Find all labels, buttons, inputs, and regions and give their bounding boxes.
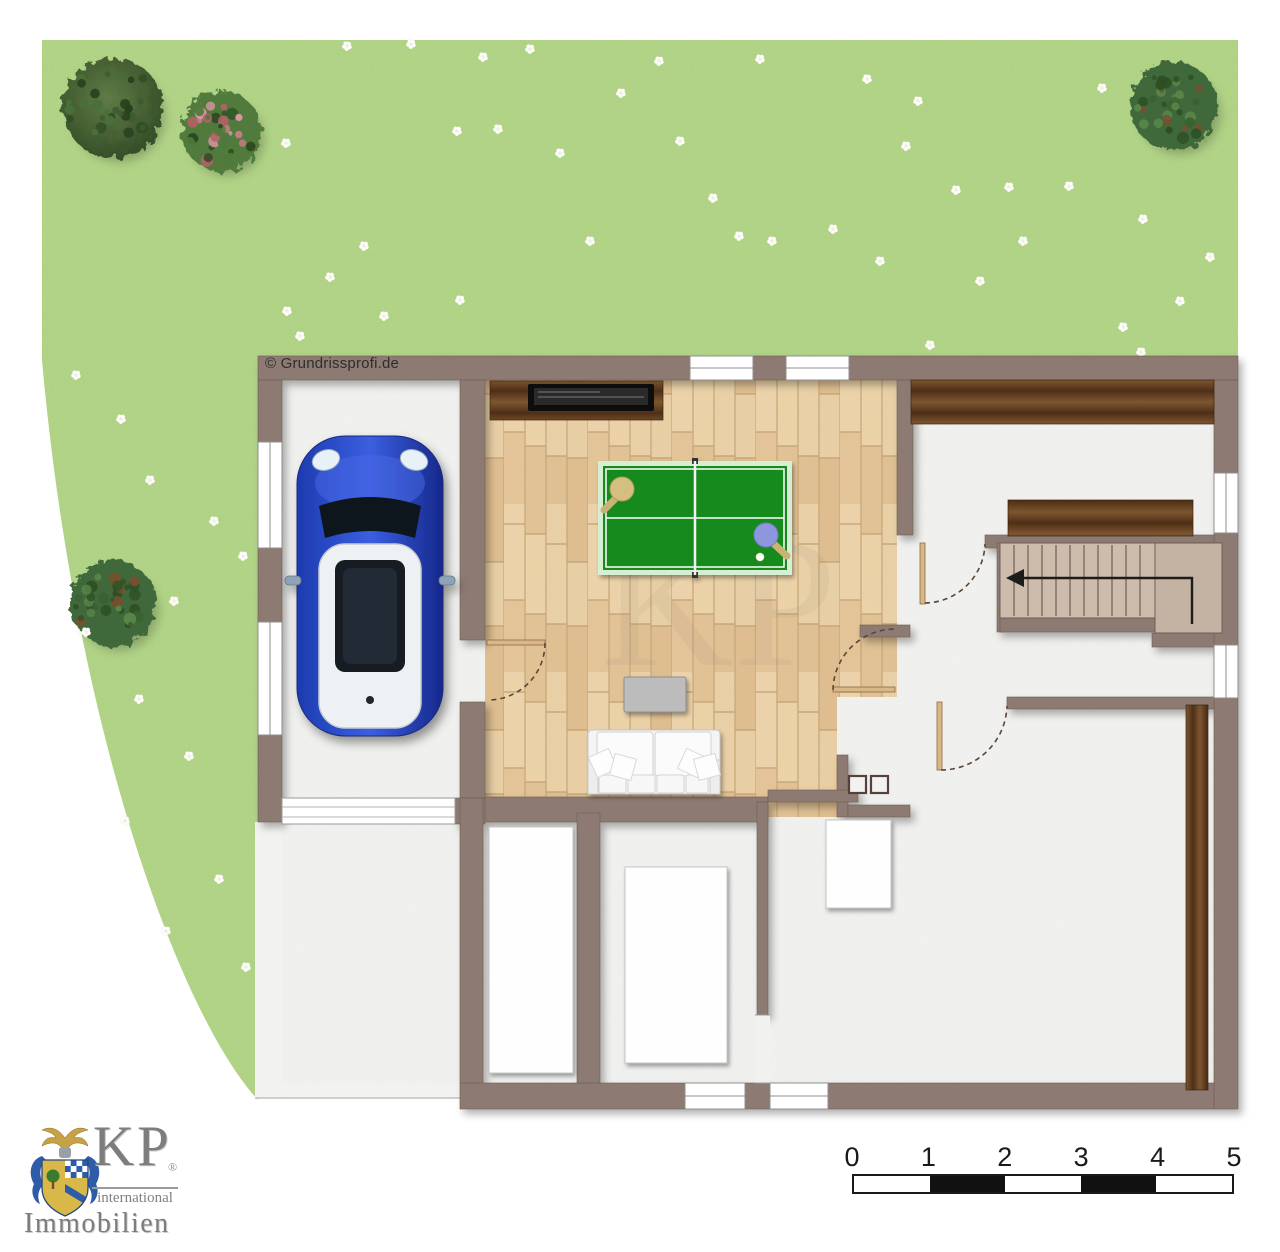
trunk-handle (366, 696, 374, 704)
wall (848, 805, 910, 817)
scale-label: 1 (921, 1142, 936, 1173)
scale-segment-white (1005, 1176, 1081, 1192)
table (625, 867, 727, 1063)
wall (897, 380, 913, 535)
wall (837, 755, 848, 817)
door-opening (755, 1015, 770, 1083)
floorplan-page: KP (0, 0, 1280, 1252)
car (285, 436, 455, 736)
helmet-icon (59, 1147, 71, 1158)
scale-segments (852, 1174, 1234, 1194)
floorplan-scene: KP (0, 0, 1280, 1252)
tree-emblem (47, 1170, 60, 1183)
wall (577, 813, 600, 1083)
wall (460, 798, 483, 1083)
door-leaf (920, 543, 925, 604)
wall (1000, 618, 1155, 632)
coffee-table (624, 677, 686, 712)
daisy-flower (120, 816, 130, 825)
eagle-icon (42, 1128, 88, 1150)
fixture (871, 776, 888, 793)
wall (1007, 697, 1214, 709)
ping-pong-ball (756, 553, 764, 561)
sideboard (911, 380, 1214, 424)
scale-label: 3 (1074, 1142, 1089, 1173)
scale-bar: 0 1 2 3 4 5 (852, 1142, 1234, 1194)
copyright-watermark: © Grundrissprofi.de (265, 355, 399, 372)
logo-subtitle: international (92, 1190, 178, 1207)
door-leaf (487, 640, 545, 645)
scale-segment-white (1156, 1176, 1232, 1192)
scale-label: 5 (1226, 1142, 1241, 1173)
wall (1152, 633, 1214, 647)
storage-surface (489, 827, 573, 1073)
fixture (849, 776, 866, 793)
door-leaf (833, 687, 895, 692)
scale-label: 0 (844, 1142, 859, 1173)
sideboard (1008, 500, 1193, 536)
logo-company: Immobilien (24, 1208, 170, 1240)
wall (485, 797, 768, 822)
scale-label: 2 (997, 1142, 1012, 1173)
wall (757, 802, 768, 1015)
registered-mark: ® (168, 1160, 177, 1175)
wall (768, 790, 858, 802)
agency-logo: KP ® international Immobilien (0, 1116, 260, 1252)
door-leaf (937, 702, 942, 770)
side-mirror (285, 576, 301, 585)
scale-label: 4 (1150, 1142, 1165, 1173)
scale-segment-black (1081, 1176, 1157, 1192)
logo-monogram: KP (93, 1114, 172, 1179)
wall (460, 380, 485, 640)
sunroof-glass (343, 568, 397, 664)
garage-door-opening (282, 798, 455, 824)
table (826, 820, 891, 908)
sofa (588, 730, 720, 794)
side-mirror (439, 576, 455, 585)
scale-segment-white (854, 1176, 930, 1192)
wall (460, 1083, 1214, 1109)
wardrobe-strip (1186, 705, 1208, 1090)
scale-segment-black (930, 1176, 1006, 1192)
scale-labels: 0 1 2 3 4 5 (852, 1142, 1234, 1174)
wall (460, 702, 485, 798)
logo-divider (92, 1187, 178, 1189)
stair-landing (1155, 543, 1222, 633)
table-tennis-table (598, 458, 792, 578)
